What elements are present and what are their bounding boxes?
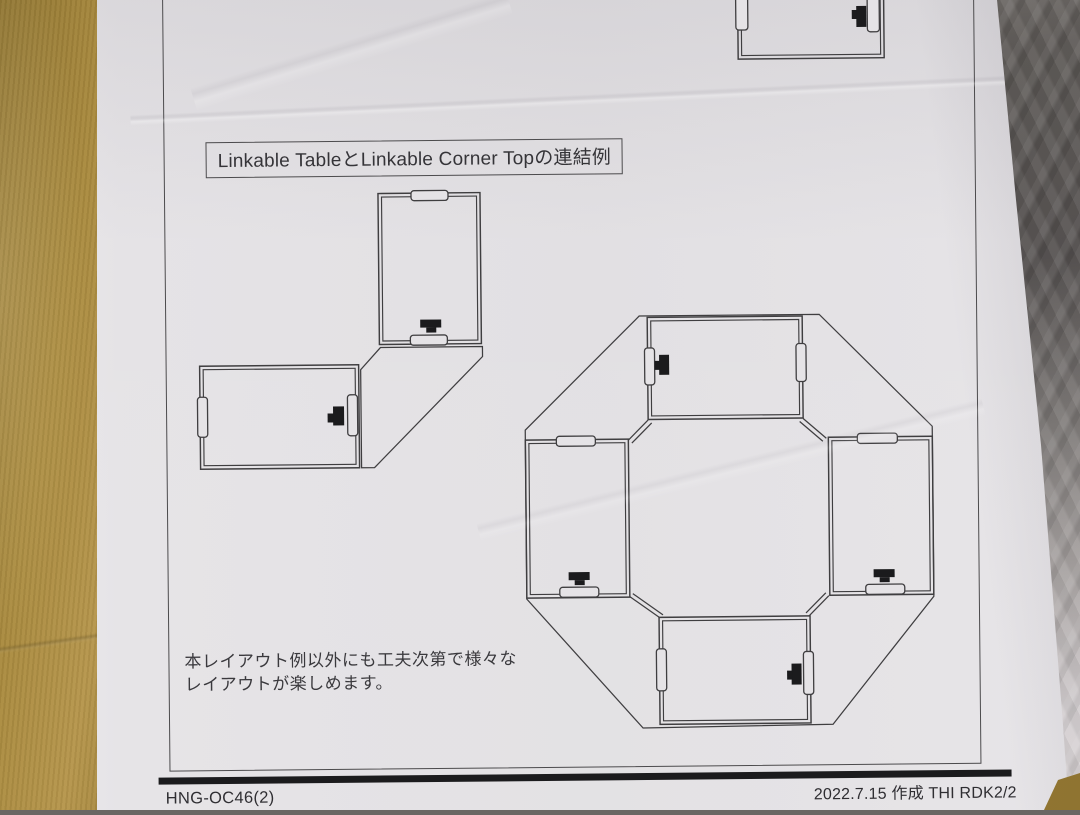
layout-note-line1: 本レイアウト例以外にも工夫次第で様々な (184, 647, 517, 673)
layout-note: 本レイアウト例以外にも工夫次第で様々な レイアウトが楽しめます。 (184, 647, 517, 696)
revision-info: 2022.7.15 作成 THI RDK2/2 (809, 778, 1017, 804)
printed-page: Linkable TableとLinkable Corner Topの連結例 (0, 0, 1080, 815)
document-code: HNG-OC46(2) (166, 789, 275, 809)
title-box: Linkable TableとLinkable Corner Topの連結例 (205, 138, 623, 178)
page-title: Linkable TableとLinkable Corner Topの連結例 (218, 147, 612, 172)
layout-note-line2: レイアウトが楽しめます。 (185, 670, 518, 696)
instruction-sheet-paper: Linkable TableとLinkable Corner Topの連結例 (0, 0, 1080, 810)
